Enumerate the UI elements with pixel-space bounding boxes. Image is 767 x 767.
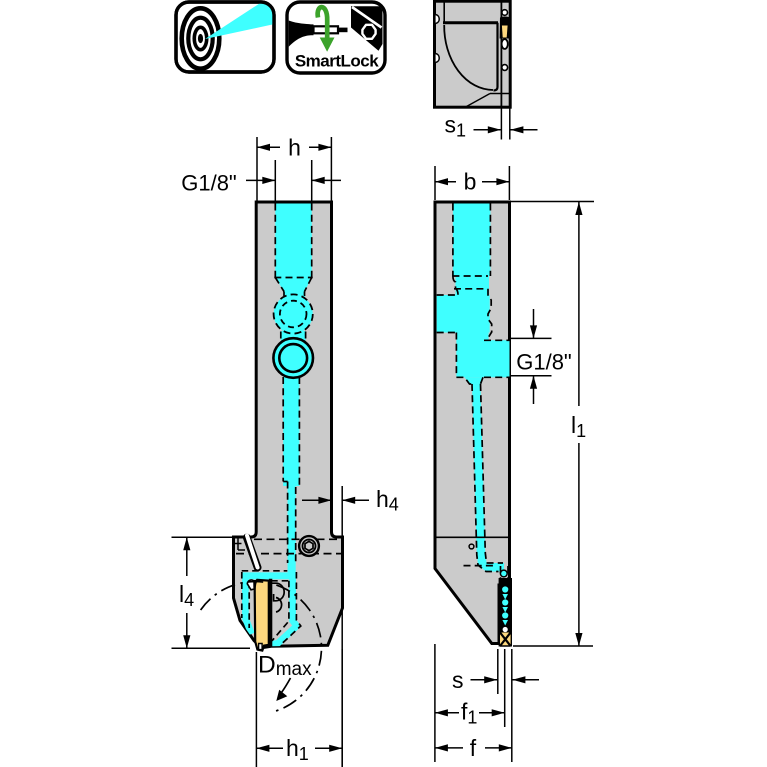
svg-text:s: s bbox=[452, 667, 464, 693]
svg-text:G1/8": G1/8" bbox=[516, 350, 572, 375]
svg-text:b: b bbox=[464, 169, 477, 195]
svg-text:G1/8": G1/8" bbox=[181, 171, 237, 196]
svg-text:h: h bbox=[288, 135, 301, 161]
svg-text:f: f bbox=[470, 735, 477, 761]
svg-text:SmartLock: SmartLock bbox=[295, 52, 379, 71]
